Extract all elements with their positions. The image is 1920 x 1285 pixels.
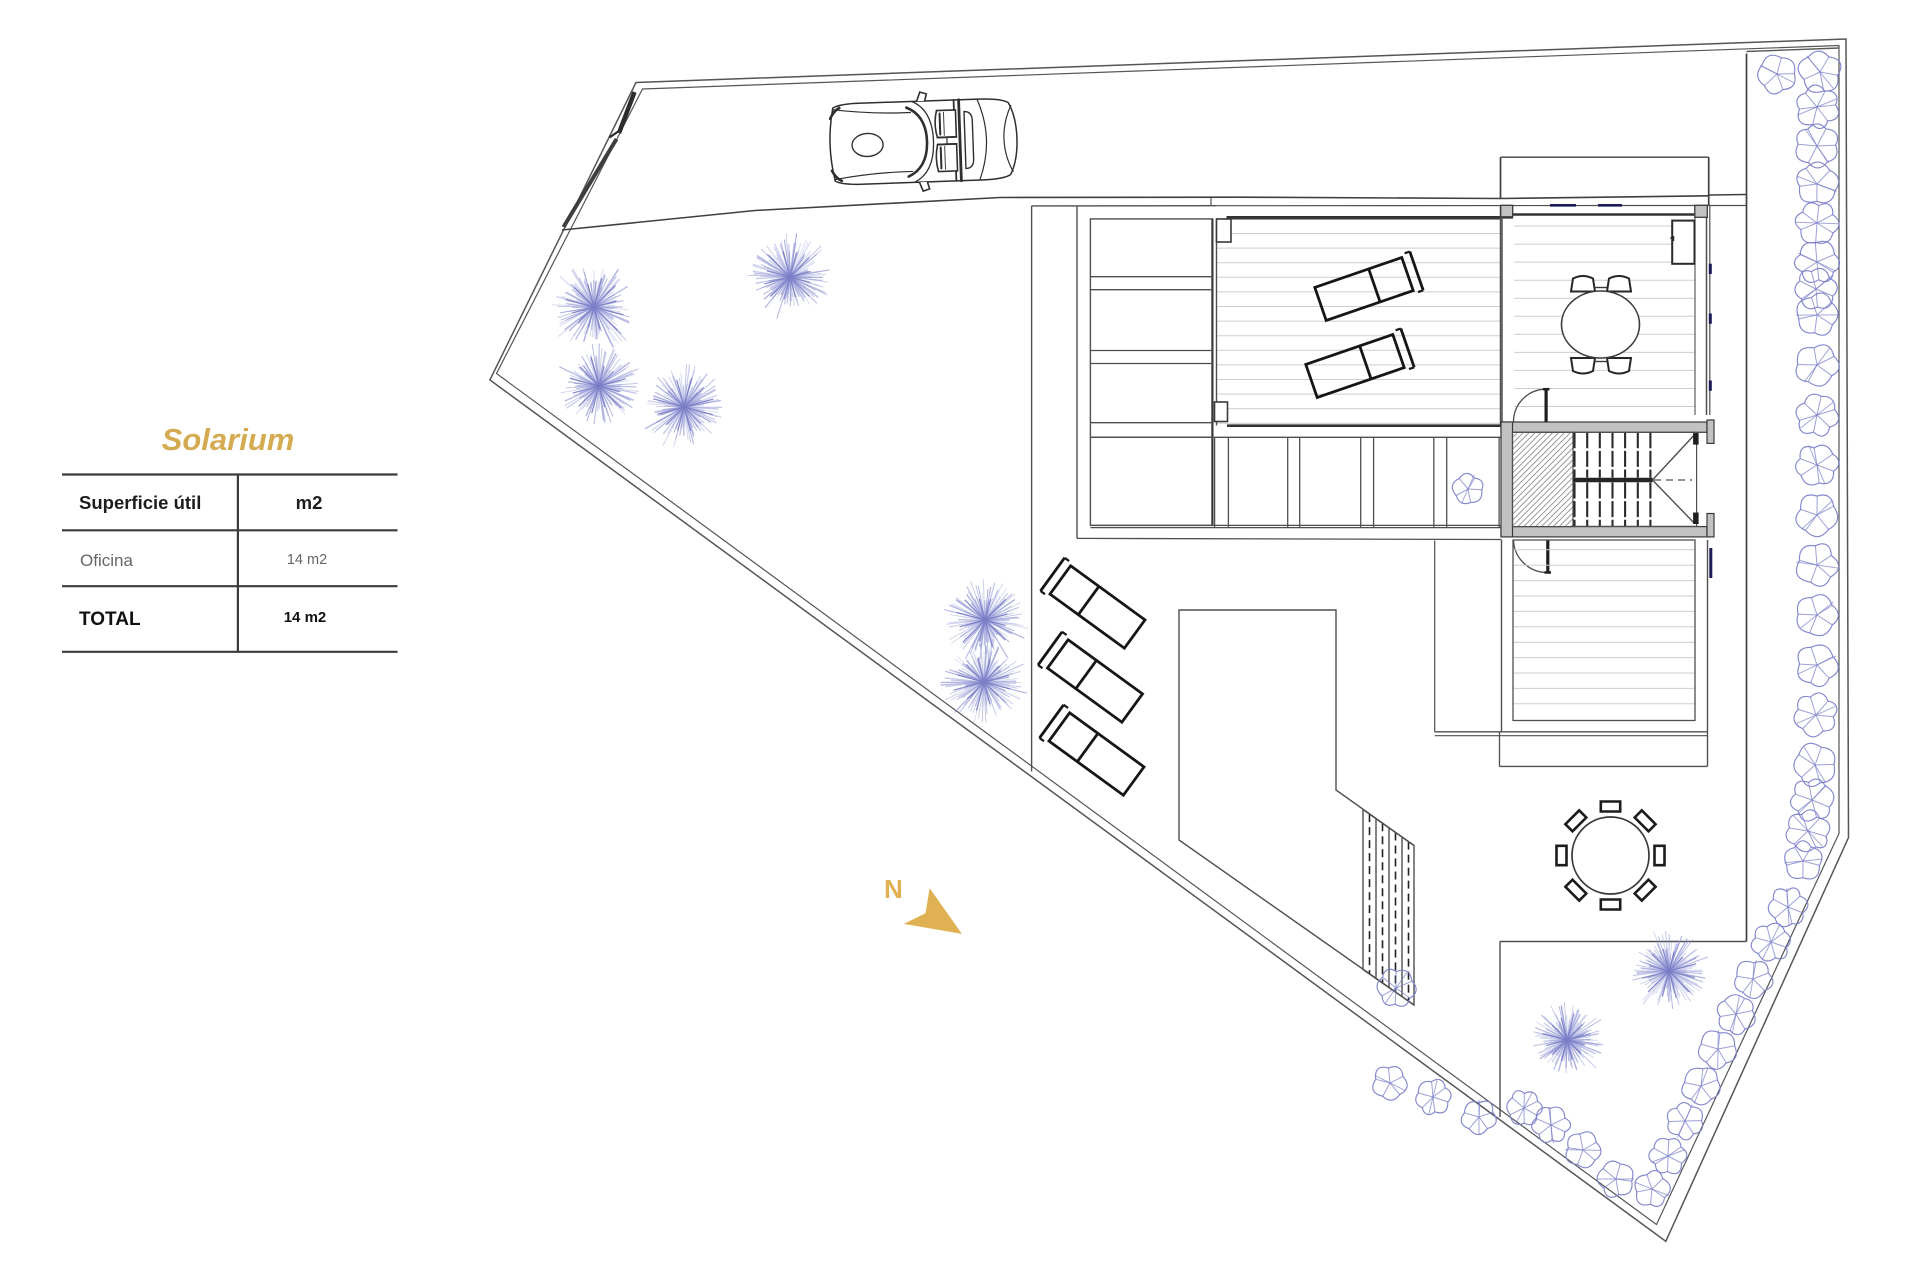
svg-text:Solarium: Solarium [162, 422, 295, 457]
svg-text:N: N [884, 874, 903, 904]
svg-text:Oficina: Oficina [80, 551, 133, 570]
svg-text:14 m2: 14 m2 [284, 609, 327, 626]
svg-text:Superficie útil: Superficie útil [79, 492, 201, 513]
svg-text:m2: m2 [296, 492, 323, 513]
svg-text:14 m2: 14 m2 [287, 552, 327, 568]
svg-text:TOTAL: TOTAL [79, 609, 141, 630]
